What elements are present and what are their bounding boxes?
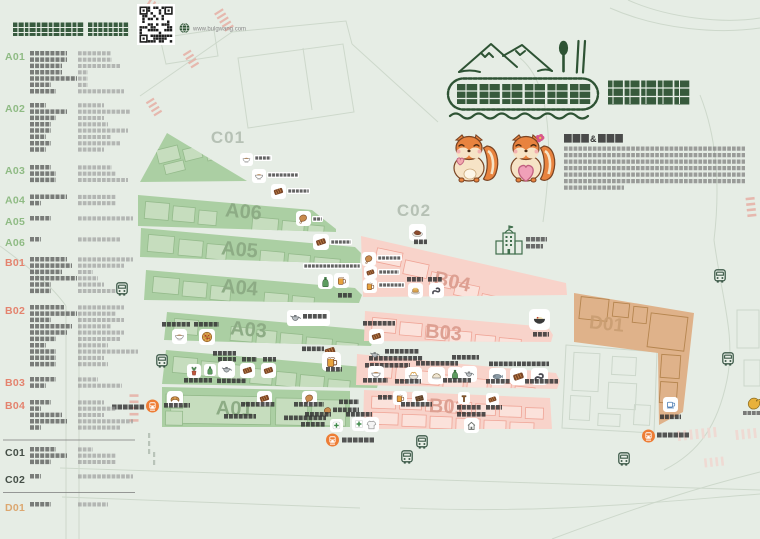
svg-text:D01: D01: [588, 312, 625, 337]
svg-text:C01: C01: [5, 447, 25, 459]
svg-text:C02: C02: [397, 201, 431, 220]
svg-text:D01: D01: [5, 502, 25, 514]
svg-text:B02: B02: [5, 305, 25, 317]
svg-text:A01: A01: [5, 51, 25, 63]
svg-text:A03: A03: [5, 165, 25, 177]
svg-text:&: &: [590, 134, 597, 144]
svg-text:B01: B01: [5, 257, 25, 269]
svg-text:B03: B03: [5, 377, 25, 389]
svg-text:A04: A04: [5, 195, 25, 207]
svg-text:A05: A05: [5, 216, 25, 228]
svg-text:B03: B03: [424, 320, 462, 345]
svg-text:A03: A03: [229, 317, 267, 342]
svg-text:C02: C02: [5, 474, 25, 486]
svg-text:B04: B04: [5, 400, 25, 412]
svg-text:www.bulgwang.com: www.bulgwang.com: [192, 27, 246, 33]
svg-text:A06: A06: [224, 199, 262, 224]
svg-text:A04: A04: [220, 275, 259, 300]
svg-text:A02: A02: [5, 103, 25, 115]
svg-text:C01: C01: [211, 128, 245, 147]
svg-text:A05: A05: [220, 237, 258, 262]
svg-text:A06: A06: [5, 237, 25, 249]
